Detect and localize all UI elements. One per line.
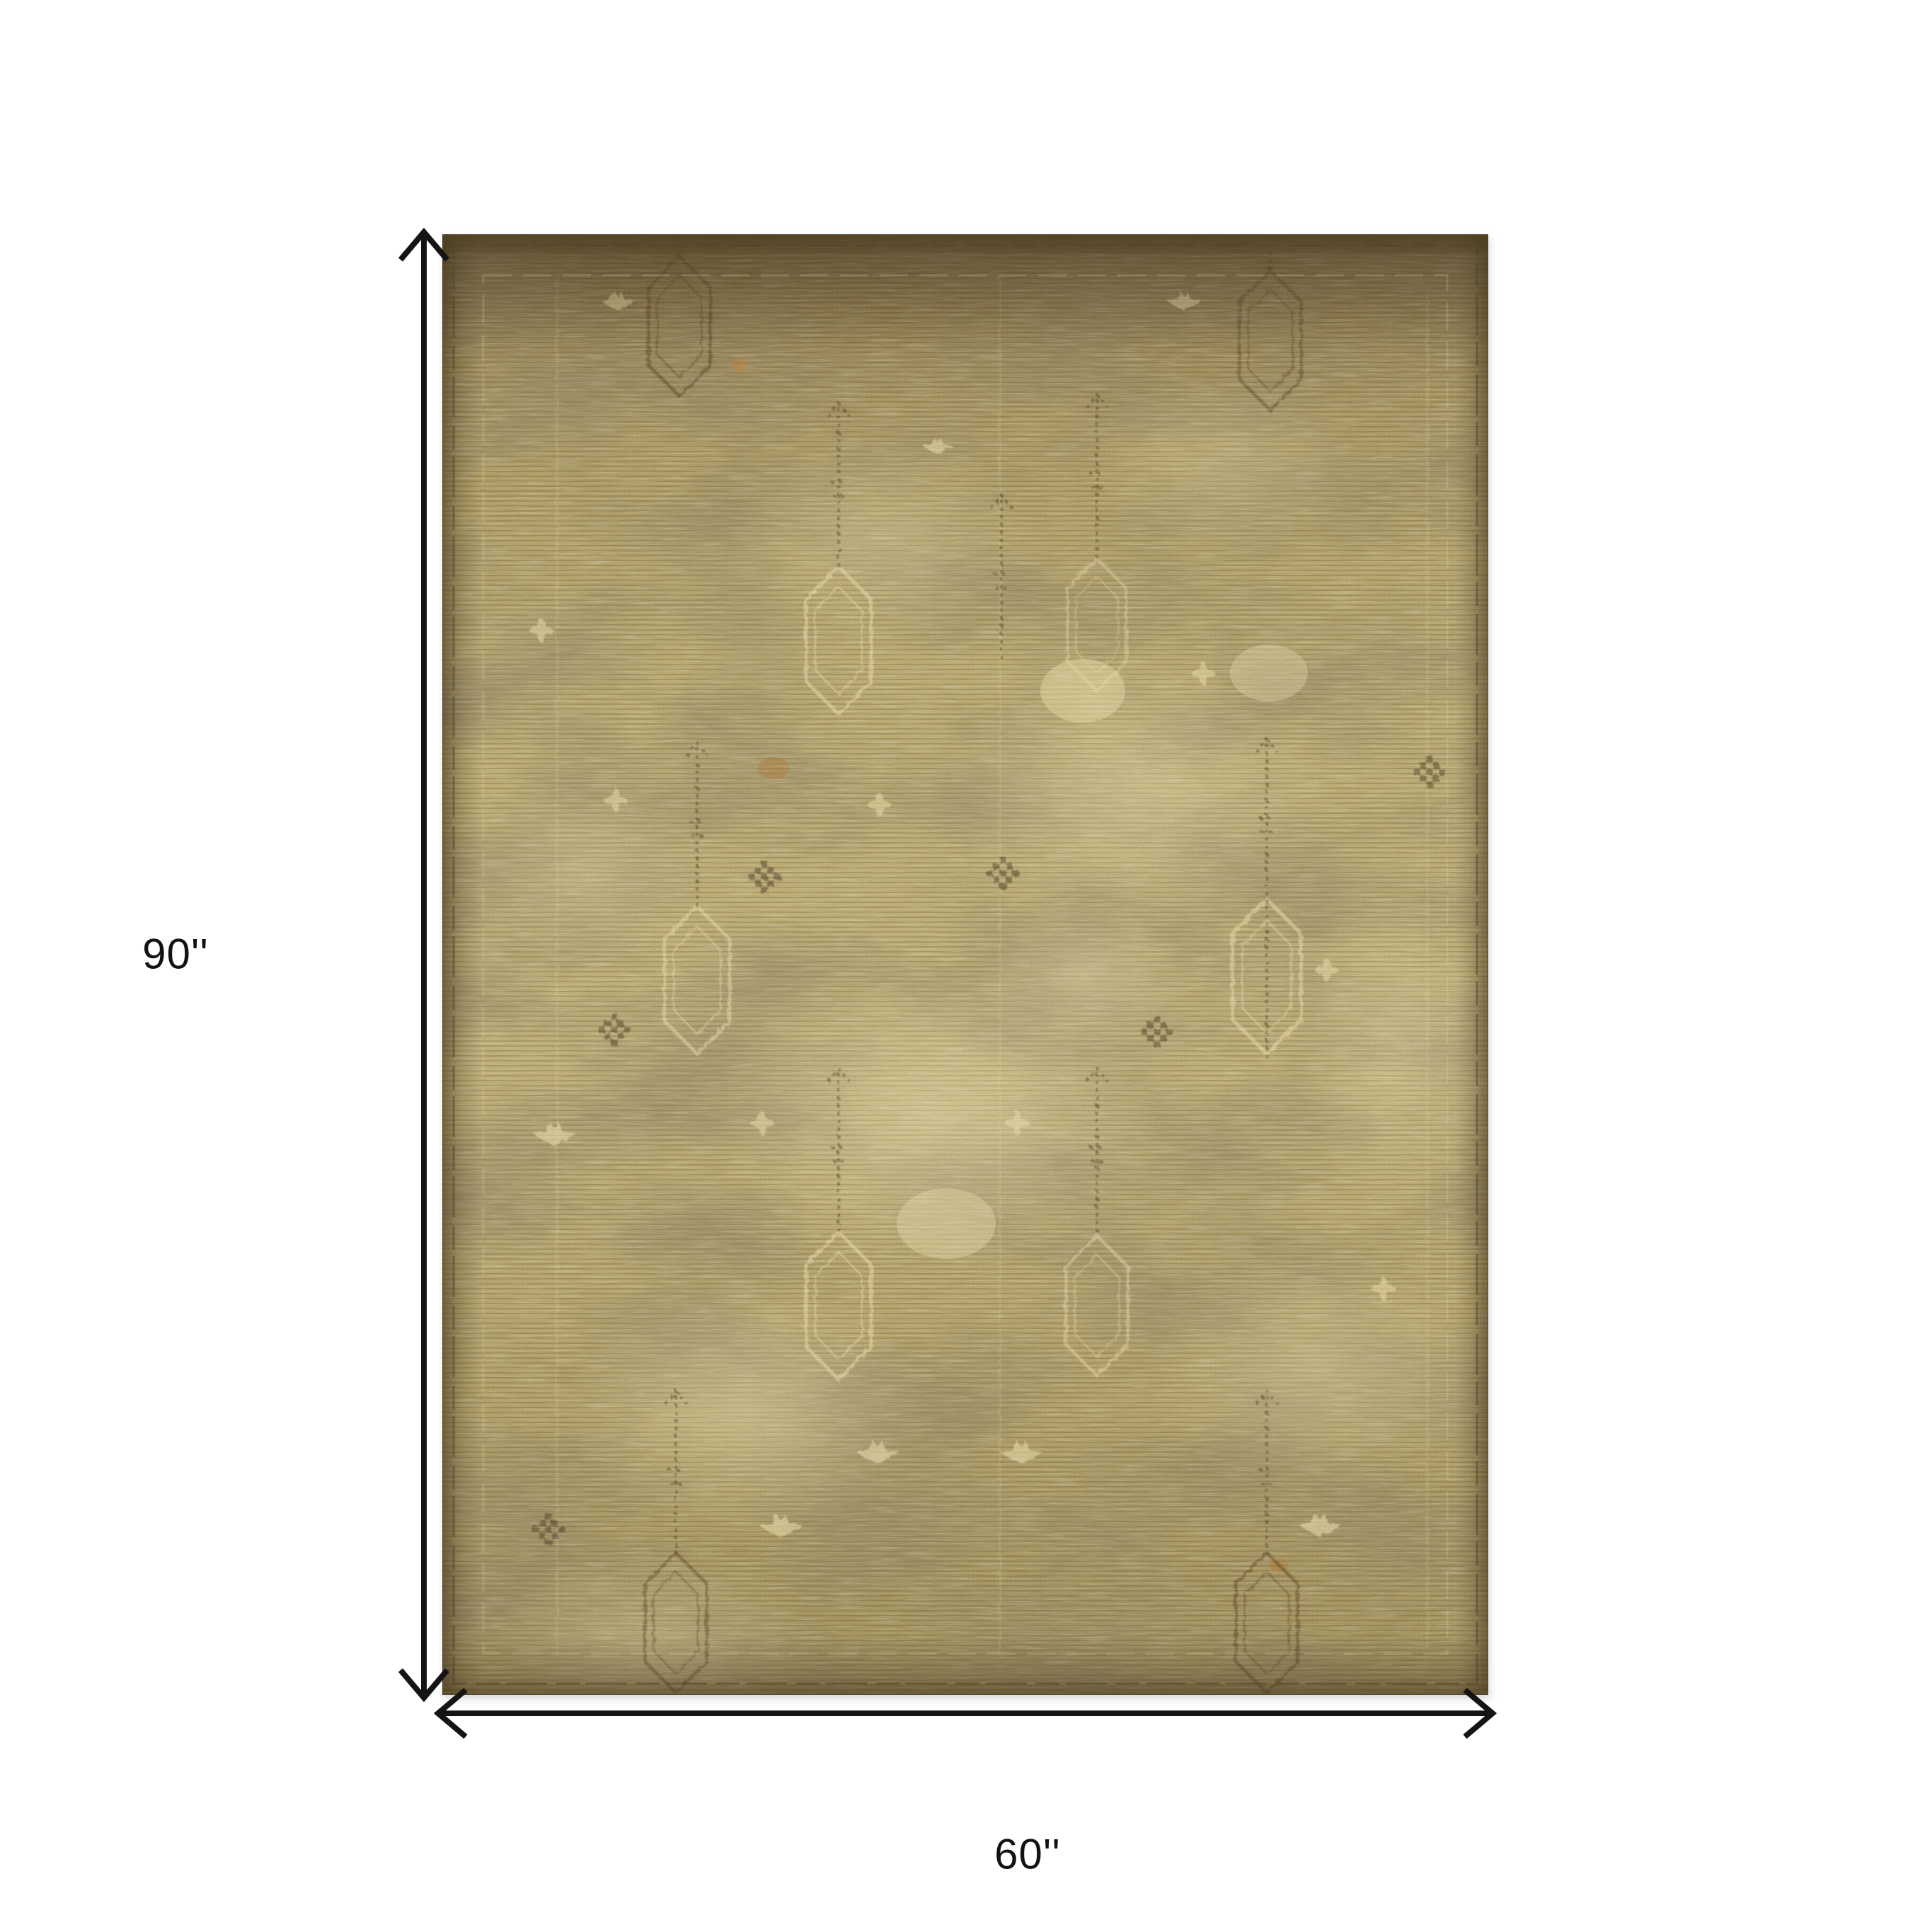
width-arrow-head-left (438, 1690, 466, 1737)
width-arrow-head-right (1465, 1690, 1493, 1737)
height-arrow-head-bottom (401, 1670, 447, 1698)
width-arrow (438, 1690, 1493, 1737)
rug-image (442, 234, 1488, 1695)
product-dimension-diagram: 90'' 60'' (0, 0, 1932, 1932)
rug-svg (442, 234, 1488, 1695)
rug-wear-overlay (442, 234, 1488, 1695)
height-arrow-head-top (401, 232, 447, 260)
width-dimension-label: 60'' (994, 1830, 1061, 1879)
height-arrow (401, 232, 447, 1698)
height-dimension-label: 90'' (142, 930, 209, 979)
